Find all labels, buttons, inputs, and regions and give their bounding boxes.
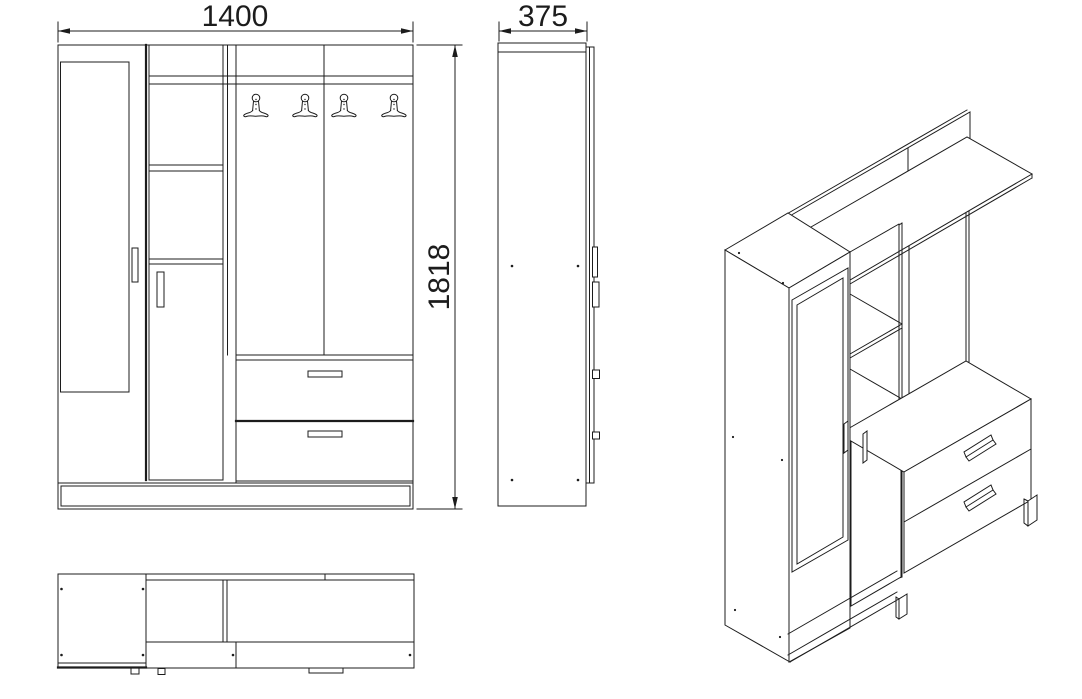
plan-middle-walls (146, 580, 414, 668)
height-dimension: 1818 (417, 45, 462, 509)
arrowhead-down (452, 497, 458, 509)
arrowhead-left (58, 28, 70, 34)
furniture-technical-drawing: 1400 1818 375 (0, 0, 1082, 699)
front-mirror-panel (61, 62, 130, 392)
iso-middle-door-handle (863, 431, 867, 463)
front-drawer-handle-bottom (308, 431, 342, 437)
width-dimension-label: 1400 (202, 0, 269, 33)
front-drawer-unit (236, 355, 413, 481)
side-drawer-handle-top (593, 370, 600, 379)
side-fitting-dots (511, 265, 580, 482)
iso-foot-right (1024, 495, 1037, 526)
side-left-door-handle (593, 247, 598, 277)
coat-hook-4 (382, 94, 406, 116)
plan-top-band (146, 574, 414, 580)
technical-drawing-page: 1400 1818 375 (0, 0, 1082, 699)
side-drawer-handle-bottom (593, 432, 600, 439)
arrowhead-right (401, 28, 413, 34)
front-view: 1400 1818 (58, 0, 462, 509)
front-drawer-handle-top (308, 371, 342, 377)
arrowhead-left (499, 28, 511, 34)
height-dimension-label: 1818 (423, 244, 456, 311)
top-view (58, 574, 414, 675)
plan-drawer-handle (309, 668, 343, 673)
plan-left-door-handle (131, 668, 139, 674)
plan-middle-door-handle (158, 669, 165, 675)
side-view: 375 (498, 0, 600, 506)
side-body (498, 43, 586, 506)
coat-hook-1 (244, 94, 268, 116)
side-middle-door-handle (593, 282, 600, 307)
front-plinth (58, 483, 413, 506)
front-left-door-handle (132, 248, 138, 282)
arrowhead-right (575, 28, 587, 34)
depth-dimension-label: 375 (518, 0, 568, 33)
plan-left-block (58, 574, 146, 668)
width-dimension: 1400 (58, 0, 413, 42)
front-shelf-lines (149, 76, 413, 480)
iso-foot-left (896, 594, 907, 619)
front-middle-door-handle (157, 272, 164, 307)
iso-view (725, 110, 1037, 662)
iso-left-door-handle (844, 421, 848, 453)
coat-hook-2 (293, 94, 317, 116)
coat-hook-3 (332, 94, 356, 116)
depth-dimension: 375 (499, 0, 587, 41)
arrowhead-up (452, 45, 458, 57)
